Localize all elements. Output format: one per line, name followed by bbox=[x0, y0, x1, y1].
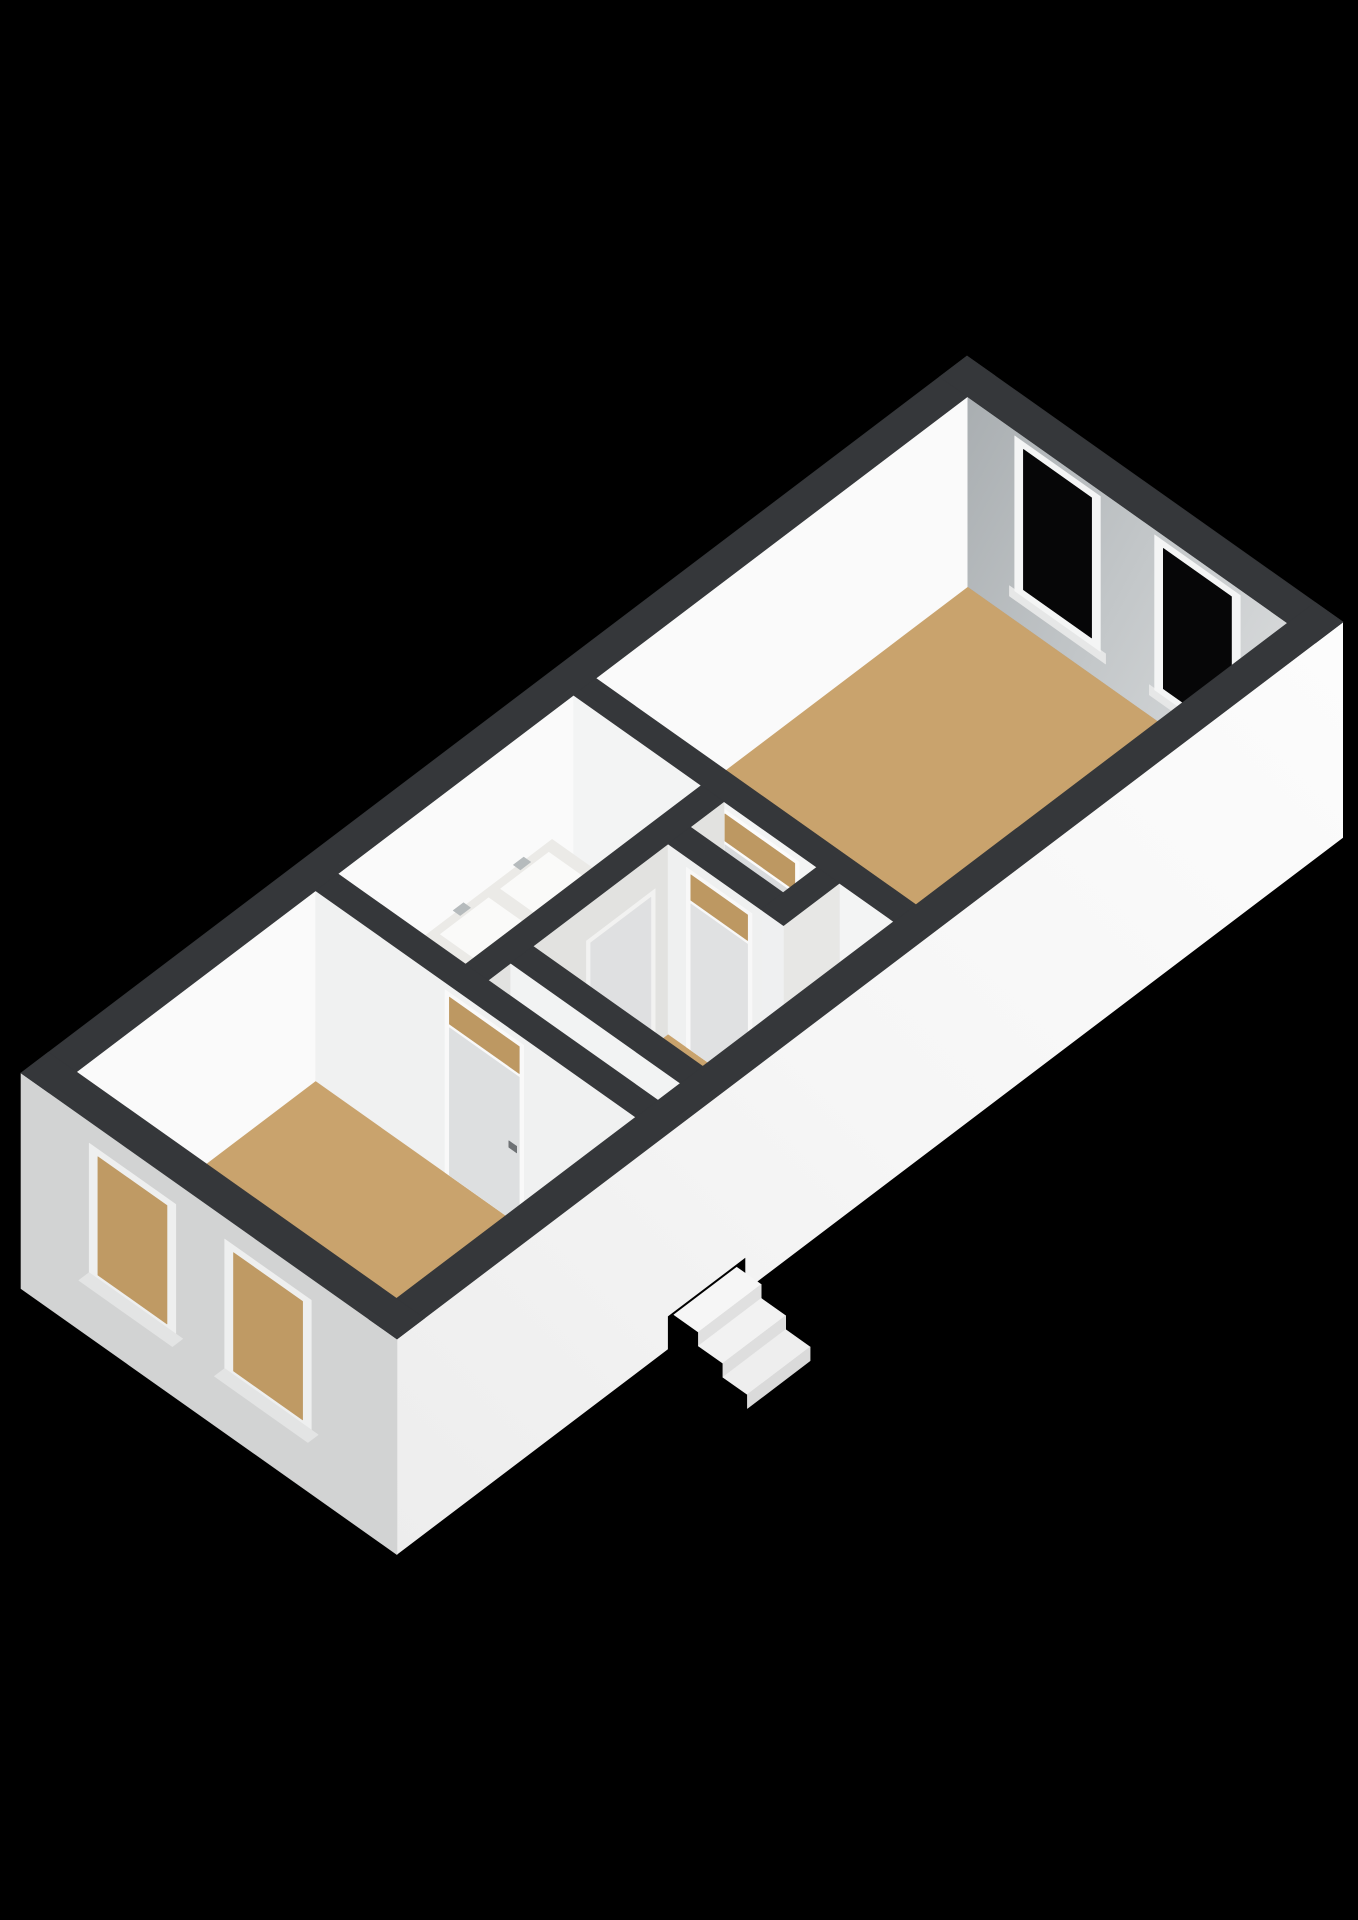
building-geometry bbox=[21, 356, 1343, 1555]
floorplan-3d-canvas bbox=[0, 0, 1358, 1920]
floorplan-3d-render bbox=[0, 0, 1358, 1920]
